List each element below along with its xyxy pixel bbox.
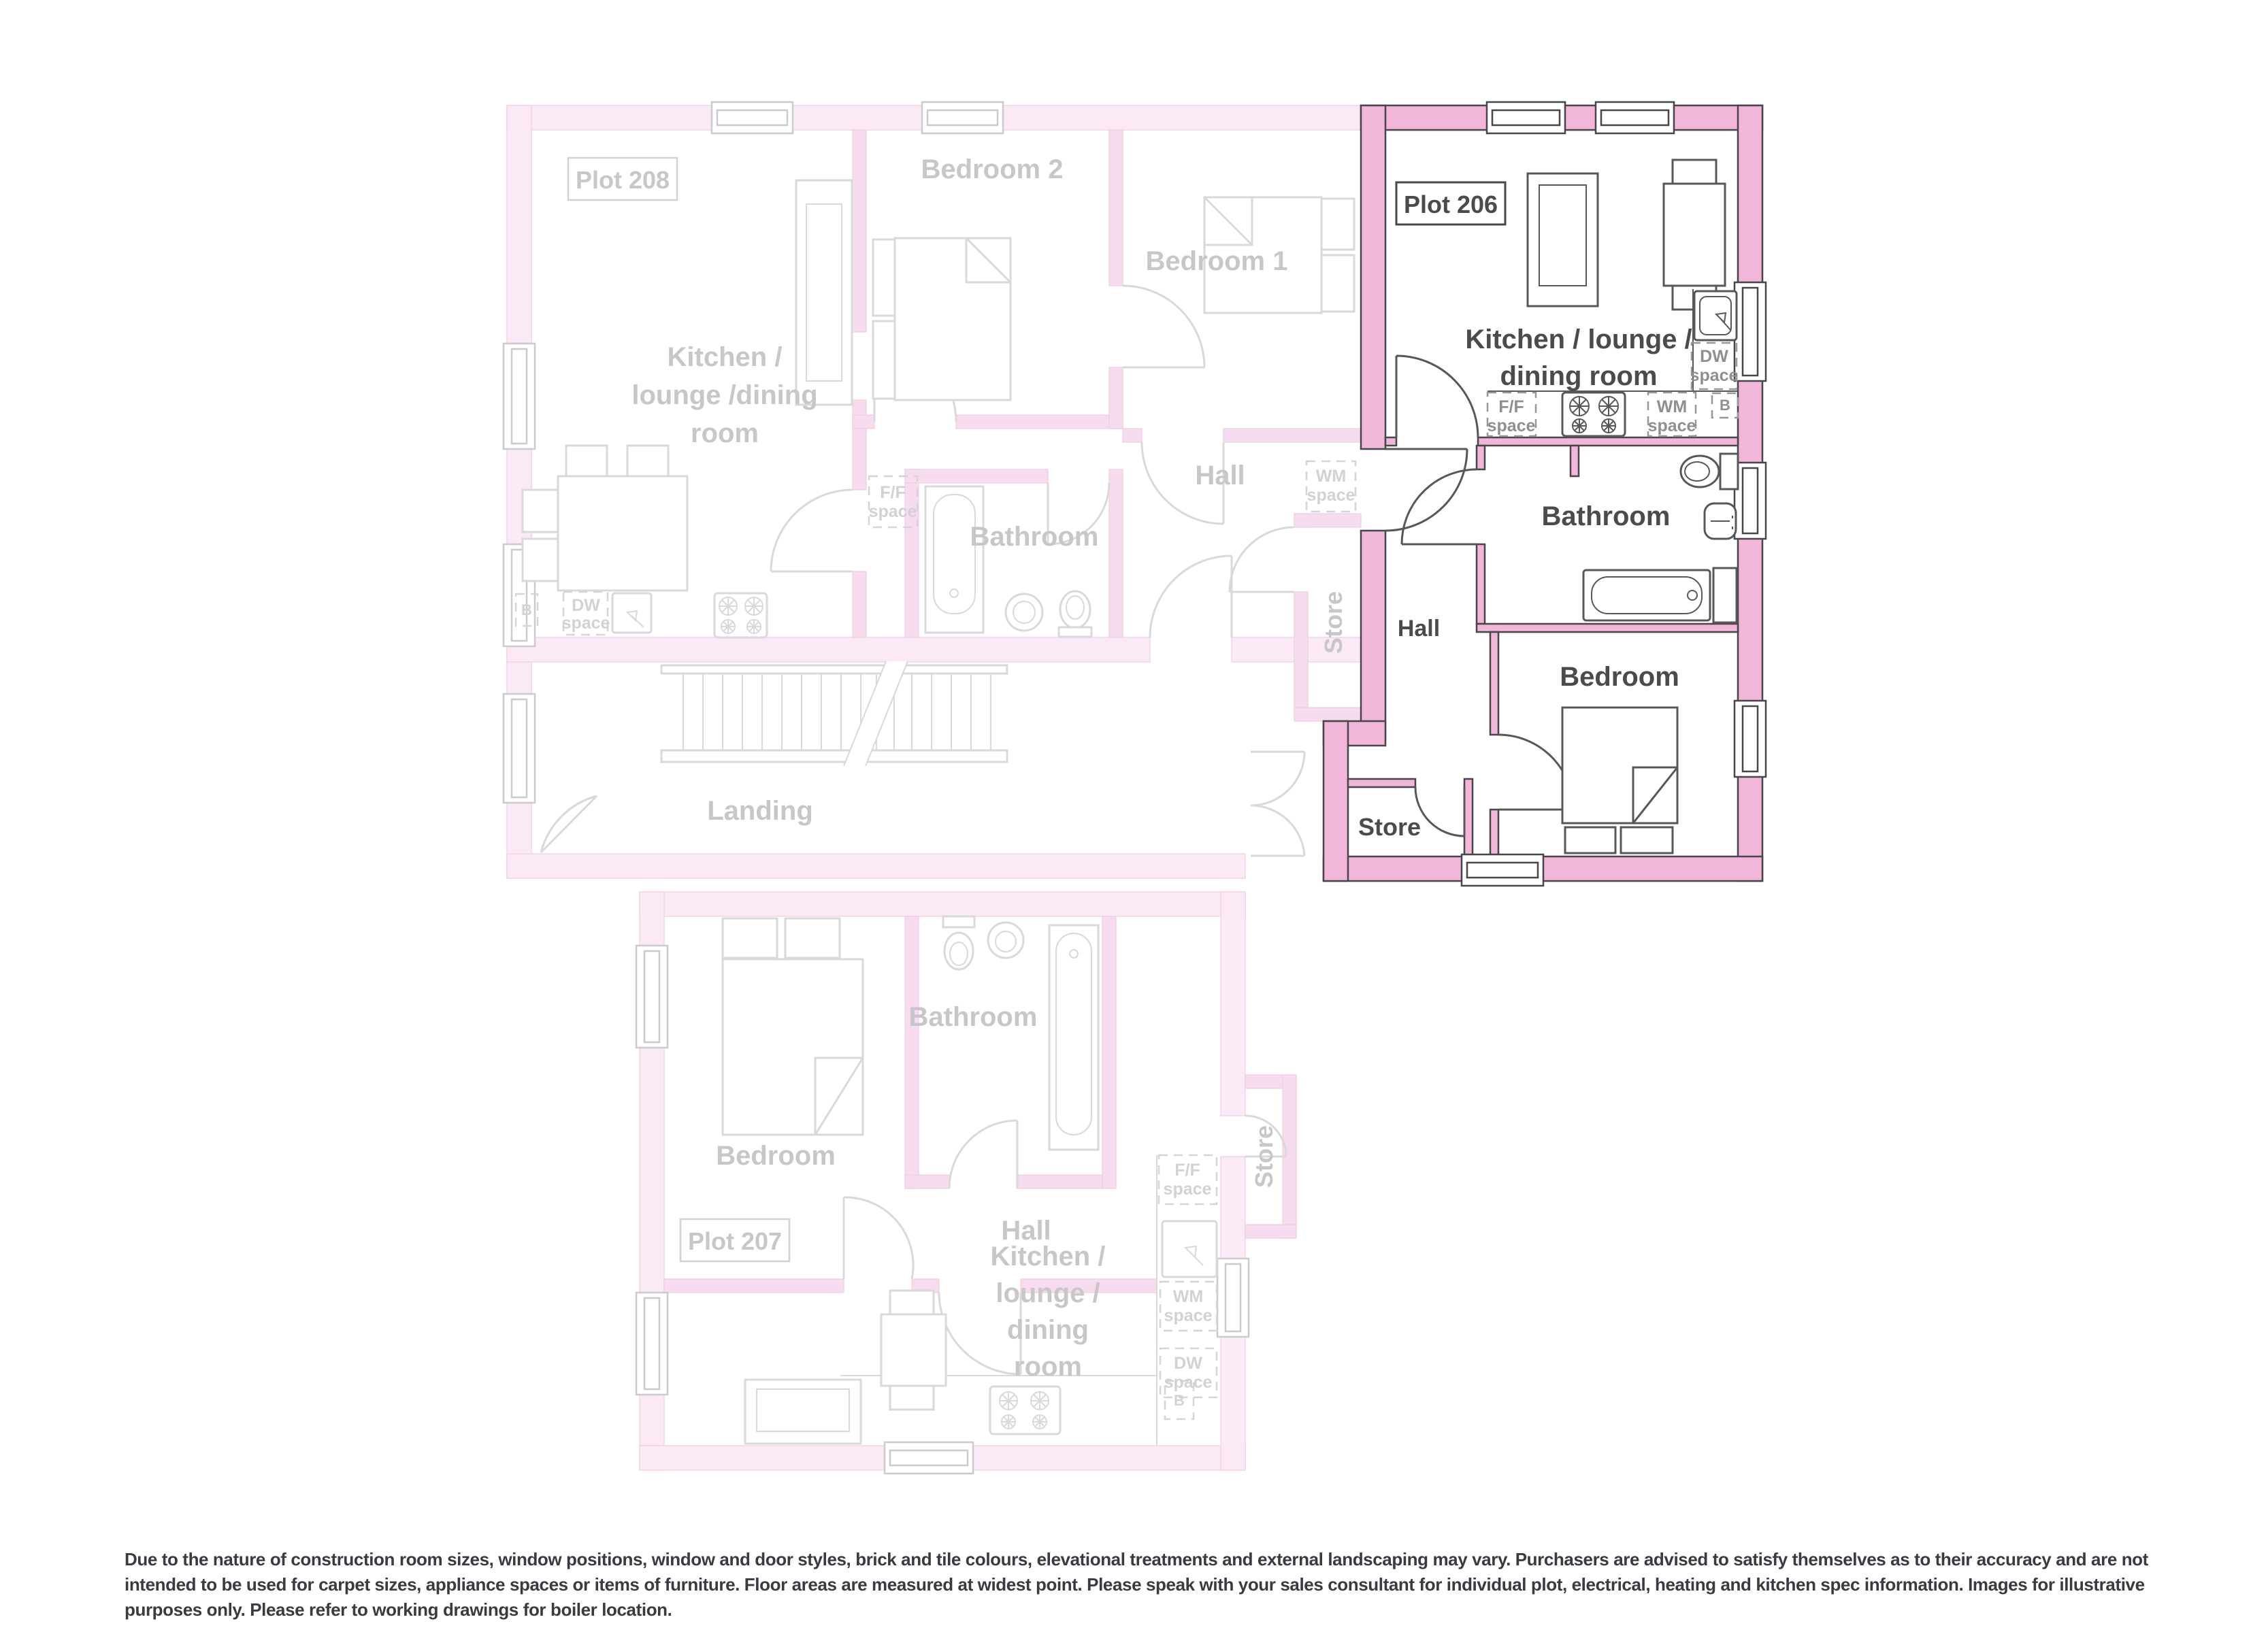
plot-207-bedroom-label: Bedroom (716, 1141, 836, 1171)
plot-207-kitchen-label-line4: room (1014, 1352, 1082, 1382)
plot-208-bedroom2-furniture (873, 238, 1010, 400)
plot-206-dw-label: DW (1700, 347, 1728, 366)
plot-207-kitchen-label-line3: dining (1007, 1315, 1089, 1345)
plot-208-wm-label: WM (1316, 467, 1346, 486)
plot-208-kitchen-label-line2: lounge /dining (631, 380, 817, 410)
plot-207-label: Plot 207 (688, 1227, 782, 1255)
plot-208-dw-label: DW (572, 596, 600, 615)
plot-208-dw-space-label: space (562, 614, 610, 633)
plot-206-boiler-label: B (1720, 397, 1730, 414)
plot-208-wm-space-label: space (1307, 486, 1355, 505)
plot-207-dw-label: DW (1174, 1354, 1202, 1373)
plot-206-ff-space-label: space (1488, 416, 1536, 435)
plot-207-bathroom-fixtures (943, 916, 1098, 1150)
plot-206-label: Plot 206 (1404, 190, 1498, 218)
plot-207-bathroom-label: Bathroom (909, 1002, 1038, 1032)
plot-206-bedroom-label: Bedroom (1560, 662, 1679, 692)
plot-206-kitchen-label-line2: dining room (1500, 361, 1657, 391)
plot-206-ff-label: F/F (1498, 397, 1524, 416)
plot-207-ff-space-label: space (1164, 1180, 1212, 1199)
plot-206-store-label: Store (1358, 813, 1421, 841)
plot-208-bathroom-fixtures (925, 486, 1091, 637)
plot-206-kitchen-furniture (1488, 160, 1738, 436)
plot-207-boiler-label: B (1174, 1392, 1185, 1409)
landing-doors (541, 752, 1304, 856)
disclaimer-text: Due to the nature of construction room s… (125, 1547, 2149, 1623)
plot-206-wm-label: WM (1657, 397, 1687, 416)
landing-stairs (661, 661, 1007, 766)
plot-207-ff-label: F/F (1174, 1161, 1200, 1180)
plot-207-dw-space-label: space (1164, 1373, 1213, 1392)
plot-207-kitchen-label-line1: Kitchen / (991, 1242, 1106, 1271)
plot-208-boiler-label: B (521, 601, 532, 618)
plot-208-kitchen-label-line3: room (691, 418, 759, 448)
plot-207-kitchen-label-line2: lounge / (996, 1278, 1100, 1308)
plot-208-ff-space-label: space (869, 502, 917, 521)
plot-208-bathroom-label: Bathroom (970, 522, 1099, 552)
plot-207-kitchen-furniture (745, 1155, 1217, 1446)
plot-207-store-label: Store (1250, 1125, 1278, 1188)
plot-207-wm-space-label: space (1164, 1306, 1213, 1325)
plot-206-bathroom-label: Bathroom (1542, 501, 1671, 531)
plot-206-bathroom-fixtures (1583, 454, 1738, 622)
landing-label: Landing (707, 796, 813, 826)
plot-208-label: Plot 208 (576, 166, 670, 194)
plot-207-wm-label: WM (1173, 1287, 1203, 1306)
plot-206-bedroom-furniture (1562, 708, 1677, 853)
floorplan-svg: Plot 208 Kitchen / lounge /dining room B… (0, 0, 2268, 1630)
plot-206-kitchen-label-line1: Kitchen / lounge / (1465, 325, 1692, 354)
plot-208-kitchen-label-line1: Kitchen / (668, 342, 783, 372)
plot-206-hall-label: Hall (1398, 616, 1440, 642)
plot-208-hall-label: Hall (1195, 461, 1245, 490)
plot-208-store-label: Store (1319, 591, 1347, 654)
plot-208-bedroom2-label: Bedroom 2 (921, 154, 1064, 184)
plot-207-bedroom-furniture (723, 918, 863, 1135)
plot-208-bedroom1-label: Bedroom 1 (1146, 246, 1288, 276)
plot-208-ff-label: F/F (880, 483, 906, 502)
floorplan-page: Plot 208 Kitchen / lounge /dining room B… (0, 0, 2268, 1630)
plot-206-dw-space-label: space (1690, 366, 1739, 385)
plot-206-wm-space-label: space (1648, 416, 1696, 435)
